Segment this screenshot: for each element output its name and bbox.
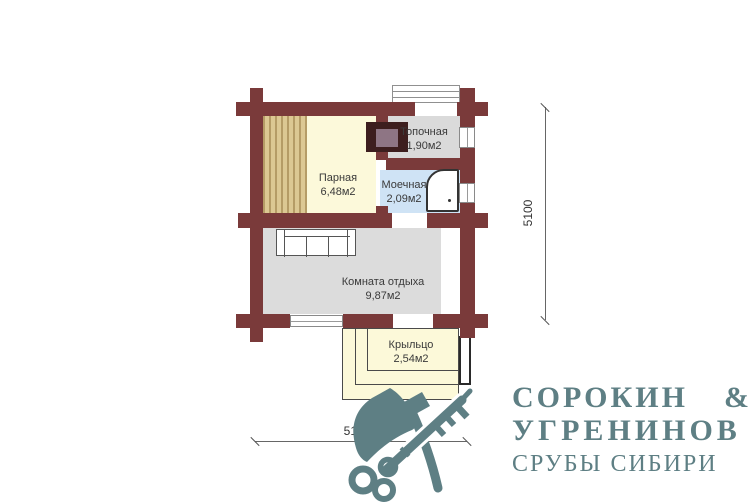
sofa (276, 229, 356, 256)
vertical-dimension-label: 5100 (521, 191, 535, 235)
divider-steam-rest (238, 213, 392, 228)
entrance-steps (392, 85, 460, 103)
rest-room-window (290, 315, 343, 327)
bottom-wall-left-segment (236, 314, 290, 328)
divider-rest-right-segment (427, 213, 488, 228)
porch-label: Крыльцо2,54м2 (371, 338, 451, 367)
logo-icon (342, 376, 494, 502)
furnace-room-label: Топочная1,90м2 (384, 125, 464, 154)
vertical-dimension-line (545, 107, 546, 320)
washing-room-label: Моечная2,09м2 (374, 178, 434, 207)
logo-name-1: СОРОКИН (512, 381, 688, 414)
logo-line-2: УГРЕНИНОВ (512, 414, 752, 448)
steam-room-label: Парная6,48м2 (298, 171, 378, 200)
floor-plan-page: Парная6,48м2 Топочная1,90м2 Моечная2,09м… (0, 0, 753, 502)
divider-steam-washing-stub (376, 206, 388, 213)
company-logo: СОРОКИН & УГРЕНИНОВ СРУБЫ СИБИРИ (512, 381, 752, 481)
washing-room-window (459, 183, 475, 203)
bottom-wall-mid-segment (343, 314, 393, 328)
bottom-wall-right-segment (433, 314, 488, 328)
logo-line-3: СРУБЫ СИБИРИ (512, 448, 752, 481)
logo-ampersand: & (724, 381, 752, 414)
shower-drain (448, 199, 451, 202)
logo-line-1: СОРОКИН & (512, 381, 752, 414)
rest-room-label: Комната отдыха9,87м2 (323, 275, 443, 304)
